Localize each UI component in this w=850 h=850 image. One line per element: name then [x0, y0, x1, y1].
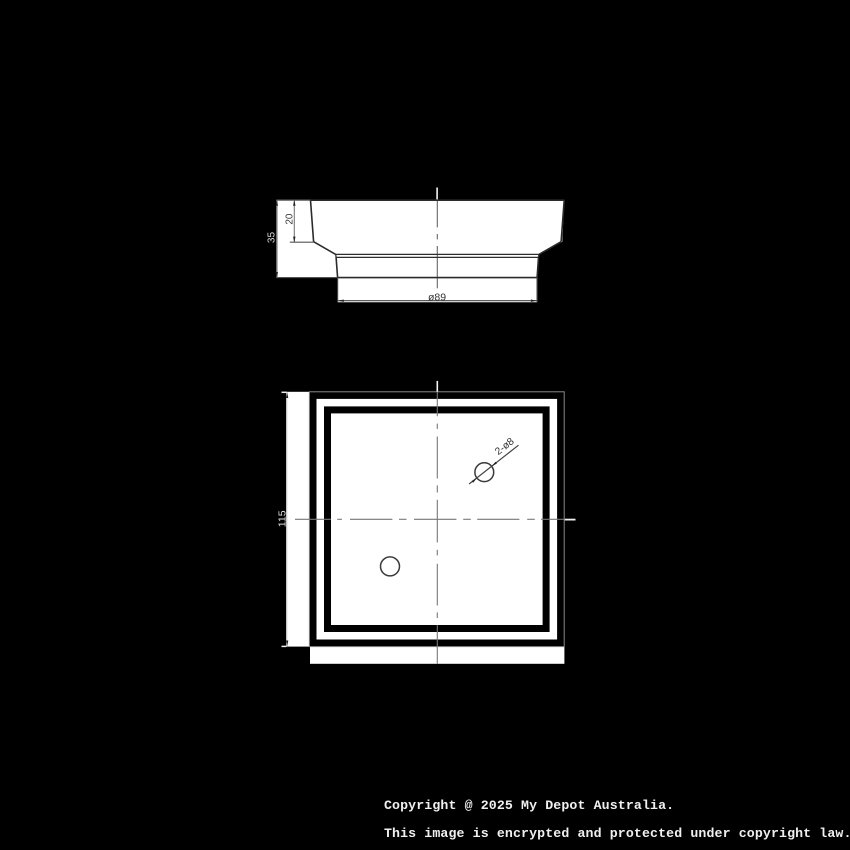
svg-text:35: 35: [267, 232, 278, 244]
svg-text:ø89: ø89: [428, 291, 446, 303]
svg-text:20: 20: [285, 213, 296, 225]
svg-text:115: 115: [276, 510, 288, 527]
